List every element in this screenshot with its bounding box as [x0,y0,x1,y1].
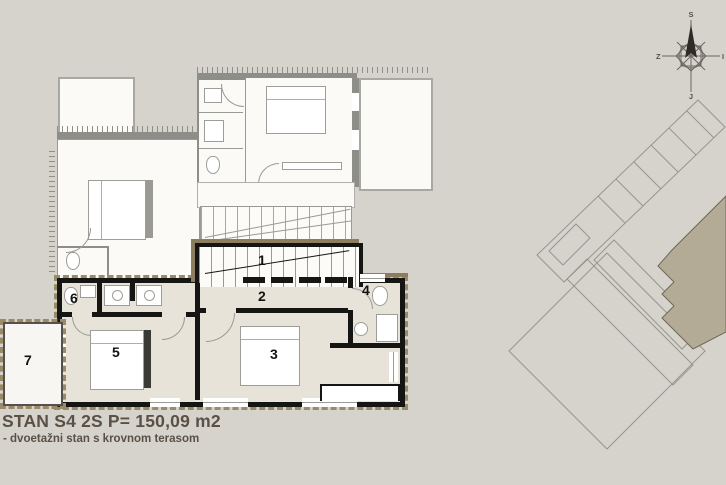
window-room4-top [360,274,385,282]
terrace-room7 [3,322,63,406]
wall-room5-right [195,283,200,400]
room-label-4: 4 [362,282,370,298]
upper-bath-wall-v [107,246,109,280]
upper-toilet-left [66,252,80,270]
site-inner-unit [549,224,590,265]
apartment-title: STAN S4 2S P= 150,09 m2 [2,411,221,432]
window-bottom-2 [203,398,248,407]
site-highlighted-unit [658,196,726,349]
room-label-7: 7 [24,352,32,368]
wall-room4-bottom [330,343,400,348]
site-plan [500,88,726,485]
sink-room4 [354,322,368,336]
upper-bed-right [266,86,326,134]
room-label-6: 6 [70,290,78,306]
upper-window-terrace-2 [352,130,359,150]
stair-hall-dash-1 [243,277,265,283]
compass-label-south: J [689,92,693,100]
stair-hall-dash-3 [299,277,321,283]
compass-north-needle [685,24,697,58]
upper-terrace-right [359,78,433,191]
room-label-3: 3 [270,346,278,362]
room-label-2: 2 [258,288,266,304]
vanity-1 [104,285,130,306]
upper-fixture-2 [204,120,224,142]
stair-hall-dash-4 [325,277,347,283]
upper-utility-divider-1 [199,112,243,113]
upper-utility-divider-2 [199,148,243,149]
vanity-2 [136,285,162,306]
upper-toilet-column [206,156,220,174]
site-divider-6 [687,111,714,138]
site-divider-2 [616,179,643,206]
site-divider-4 [651,145,678,172]
window-bottom-1 [150,398,180,407]
compass-label-east: I [722,52,724,61]
site-divider-3 [634,162,661,189]
upper-window-terrace-1 [352,93,359,111]
room-label-1: 1 [258,252,266,268]
sink-room6 [80,285,96,298]
wall-vanity-stub [130,283,135,301]
apartment-subtitle: - dvoetažni stan s krovnom terasom [3,433,199,445]
compass-label-north: S [688,10,693,19]
upper-bed-left [88,180,146,240]
shower-room4 [376,314,398,342]
bed-room5 [90,330,144,390]
floor-plan-sheet: 1 2 3 4 5 6 7 STAN S4 2S P= 150,09 m2 - … [0,0,726,485]
compass-label-west: Z [656,52,661,61]
upper-hall [197,182,355,208]
upper-left-wall-hatch [49,150,55,272]
stair-hall-dash-2 [271,277,293,283]
site-divider-1 [598,196,625,223]
upper-closet-left [146,180,153,238]
compass-rose: S I Z J [656,8,726,100]
window-right-room3 [389,352,398,382]
site-divider-5 [669,128,696,155]
upper-mid-wall [57,132,209,139]
closet-room5 [144,330,151,388]
room-label-5: 5 [112,344,120,360]
vanity-2-basin [144,290,155,301]
wardrobe-room3 [320,384,400,401]
vanity-1-basin [112,290,123,301]
stairs-cut-line [205,250,349,274]
toilet-room4 [372,286,388,306]
upper-fixture-1 [204,88,222,103]
upper-window-seat [282,162,342,170]
